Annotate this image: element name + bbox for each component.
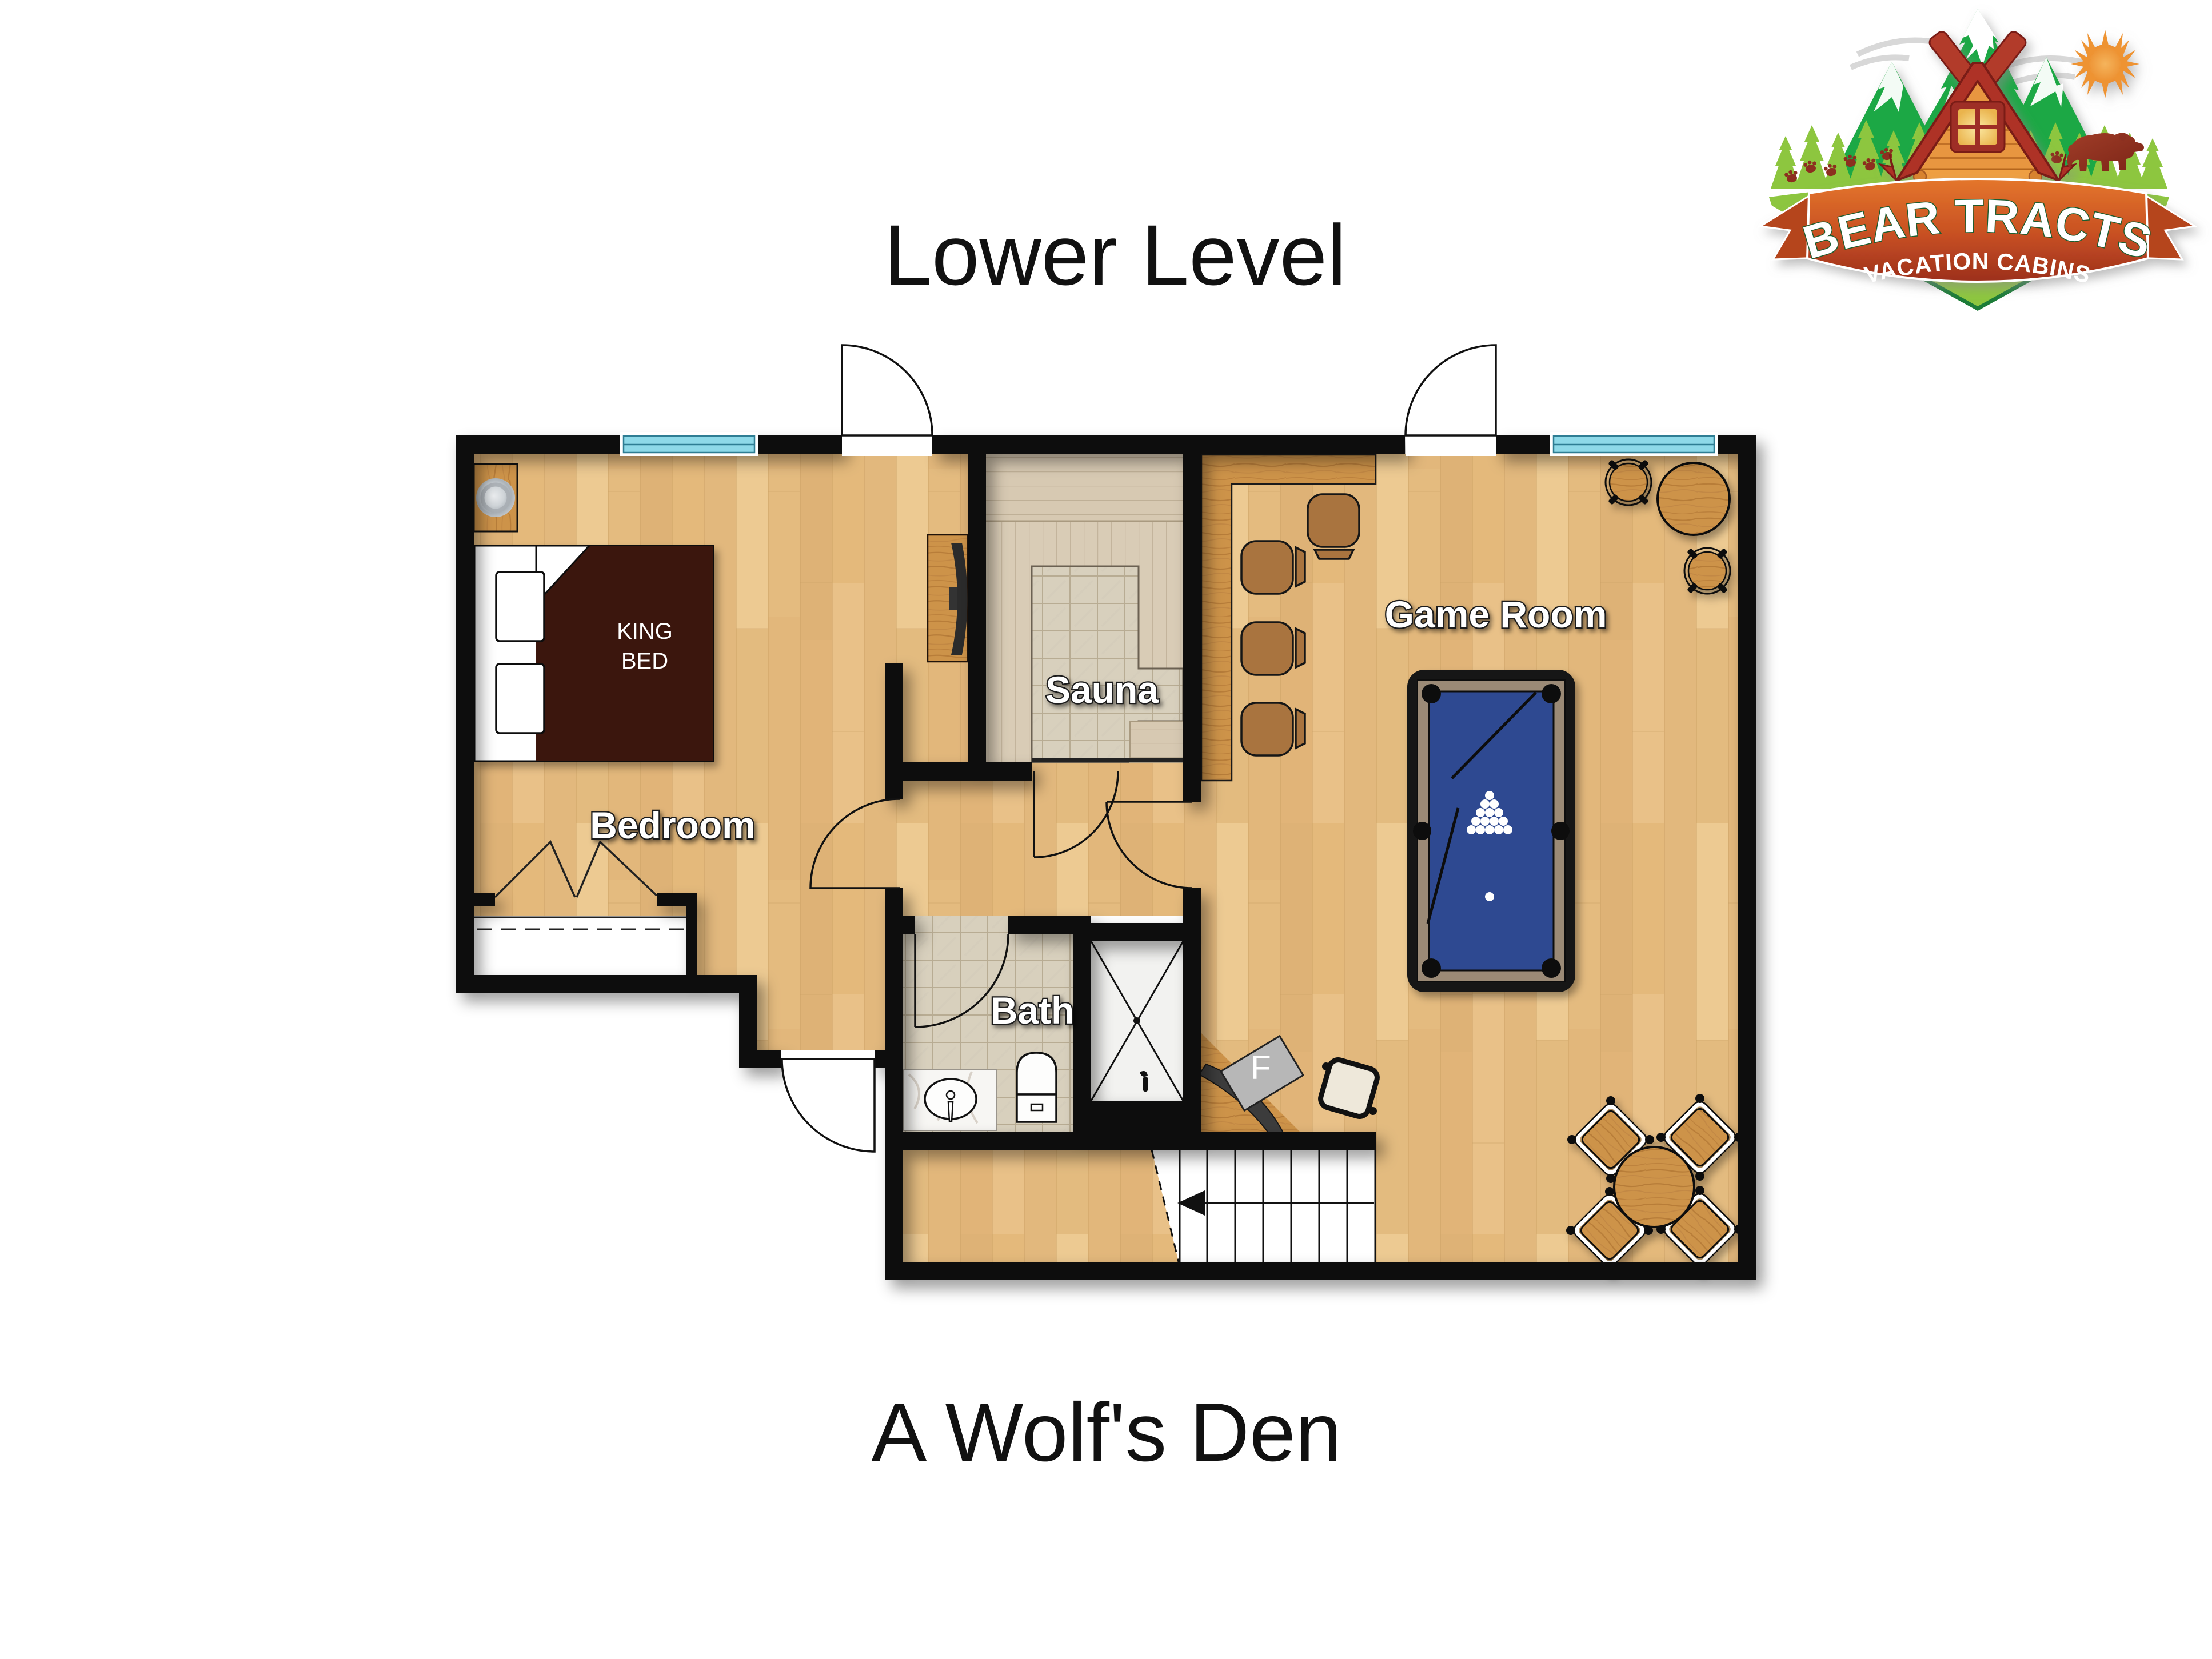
svg-text:BED: BED (621, 649, 668, 674)
svg-text:A Wolf's Den: A Wolf's Den (872, 1386, 1342, 1478)
svg-text:Game Room: Game Room (1385, 593, 1607, 635)
svg-text:F: F (1251, 1049, 1271, 1086)
svg-text:Sauna: Sauna (1045, 669, 1159, 711)
svg-text:Bedroom: Bedroom (590, 804, 756, 846)
svg-text:Lower Level: Lower Level (884, 207, 1347, 303)
svg-text:KING: KING (617, 619, 673, 644)
svg-text:Bath: Bath (991, 989, 1075, 1032)
